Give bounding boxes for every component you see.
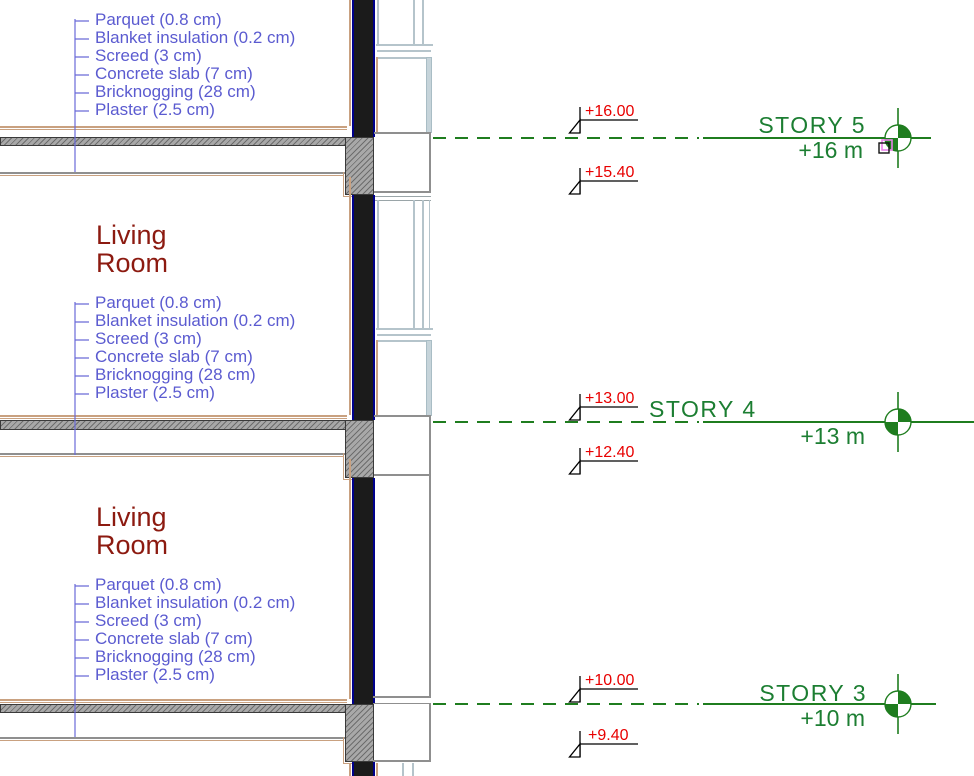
room-name-line1: Living	[96, 503, 168, 531]
layer-label: Concrete slab (7 cm)	[95, 65, 295, 83]
layer-label: Blanket insulation (0.2 cm)	[95, 594, 295, 612]
layer-label: Concrete slab (7 cm)	[95, 348, 295, 366]
layer-label: Parquet (0.8 cm)	[95, 576, 295, 594]
layer-label: Plaster (2.5 cm)	[95, 101, 295, 119]
layer-label: Blanket insulation (0.2 cm)	[95, 312, 295, 330]
layer-label: Concrete slab (7 cm)	[95, 630, 295, 648]
story4-level-marker-icon[interactable]	[885, 392, 911, 452]
elevation-value-15.40[interactable]: +15.40	[585, 164, 634, 182]
layer-label: Bricknogging (28 cm)	[95, 648, 295, 666]
layer-label: Plaster (2.5 cm)	[95, 384, 295, 402]
leader-lines-story5-labels	[75, 19, 89, 172]
elevation-value-10.00[interactable]: +10.00	[585, 672, 634, 690]
layer-label: Bricknogging (28 cm)	[95, 366, 295, 384]
story5-elevation[interactable]: +16 m	[798, 137, 863, 164]
layer-label: Blanket insulation (0.2 cm)	[95, 29, 295, 47]
elevation-value-9.40[interactable]: +9.40	[588, 727, 628, 745]
section-drawing-canvas: Parquet (0.8 cm) Blanket insulation (0.2…	[0, 0, 974, 776]
story4-elevation[interactable]: +13 m	[800, 423, 865, 450]
floor-composition-label-story4[interactable]: Parquet (0.8 cm) Blanket insulation (0.2…	[95, 294, 295, 402]
story4-name[interactable]: STORY 4	[649, 396, 757, 423]
layer-label: Screed (3 cm)	[95, 612, 295, 630]
room-name-story4[interactable]: Living Room	[96, 221, 168, 277]
layer-label: Parquet (0.8 cm)	[95, 11, 295, 29]
elevation-value-16.00[interactable]: +16.00	[585, 103, 634, 121]
layer-label: Screed (3 cm)	[95, 47, 295, 65]
floor-composition-label-story5[interactable]: Parquet (0.8 cm) Blanket insulation (0.2…	[95, 11, 295, 119]
layer-label: Bricknogging (28 cm)	[95, 83, 295, 101]
room-name-line1: Living	[96, 221, 168, 249]
room-name-line2: Room	[96, 531, 168, 559]
layer-label: Screed (3 cm)	[95, 330, 295, 348]
room-name-line2: Room	[96, 249, 168, 277]
leader-lines-story4-labels	[75, 302, 89, 455]
story3-elevation[interactable]: +10 m	[800, 705, 865, 732]
elevation-value-12.40[interactable]: +12.40	[585, 444, 634, 462]
leader-lines-story3-labels	[75, 584, 89, 737]
story3-level-marker-icon[interactable]	[885, 674, 911, 734]
story5-name[interactable]: STORY 5	[758, 112, 866, 139]
story3-name[interactable]: STORY 3	[759, 680, 867, 707]
layer-label: Parquet (0.8 cm)	[95, 294, 295, 312]
room-name-story3[interactable]: Living Room	[96, 503, 168, 559]
floor-composition-label-story3[interactable]: Parquet (0.8 cm) Blanket insulation (0.2…	[95, 576, 295, 684]
layer-label: Plaster (2.5 cm)	[95, 666, 295, 684]
elevation-value-13.00[interactable]: +13.00	[585, 390, 634, 408]
